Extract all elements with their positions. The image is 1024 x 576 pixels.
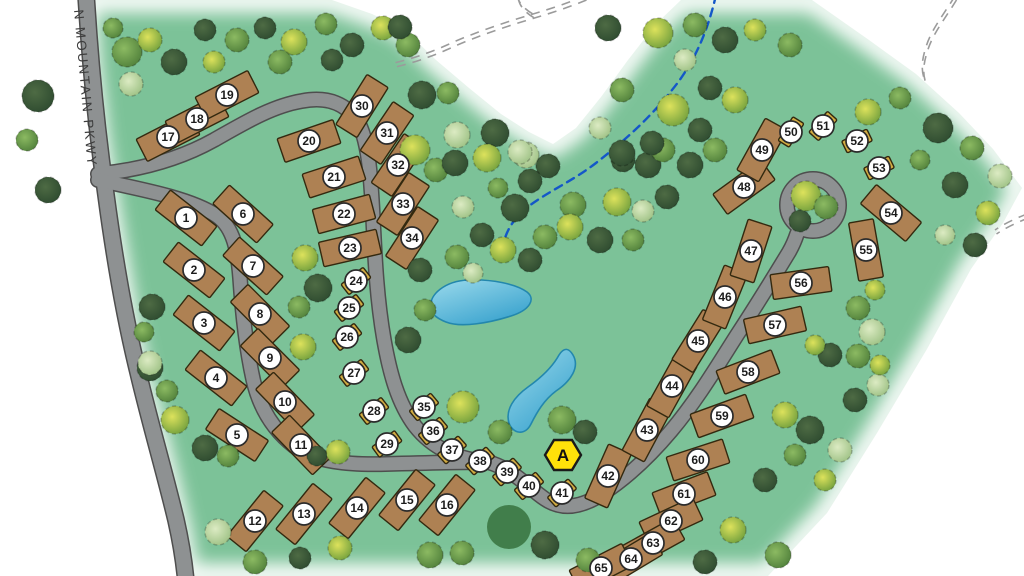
- site-label-51[interactable]: 51: [812, 115, 834, 137]
- tree-icon: [589, 117, 611, 139]
- tree-icon: [960, 136, 984, 160]
- site-number: 21: [327, 170, 341, 184]
- site-label-5[interactable]: 5: [226, 424, 248, 446]
- tree-icon: [643, 18, 673, 48]
- site-number: 7: [250, 259, 257, 273]
- site-label-9[interactable]: 9: [259, 347, 281, 369]
- tree-icon: [452, 196, 474, 218]
- tree-icon: [683, 13, 707, 37]
- site-number: 39: [500, 465, 514, 479]
- tree-icon: [859, 319, 885, 345]
- tree-icon: [243, 550, 267, 574]
- site-label-29[interactable]: 29: [376, 433, 398, 455]
- site-label-19[interactable]: 19: [216, 84, 238, 106]
- tree-icon: [855, 99, 881, 125]
- tree-icon: [846, 296, 870, 320]
- site-label-14[interactable]: 14: [346, 497, 368, 519]
- site-number: 61: [677, 487, 691, 501]
- tree-icon: [778, 33, 802, 57]
- tree-icon: [119, 72, 143, 96]
- site-label-60[interactable]: 60: [687, 449, 709, 471]
- site-label-33[interactable]: 33: [392, 193, 414, 215]
- site-number: 37: [445, 443, 459, 457]
- site-number: 56: [794, 276, 808, 290]
- site-label-1[interactable]: 1: [175, 207, 197, 229]
- site-label-50[interactable]: 50: [780, 121, 802, 143]
- site-number: 26: [340, 330, 354, 344]
- site-number: 19: [220, 88, 234, 102]
- site-number: 52: [850, 134, 864, 148]
- tree-icon: [712, 27, 738, 53]
- tree-icon: [533, 225, 557, 249]
- tree-icon: [225, 28, 249, 52]
- site-number: 55: [859, 243, 873, 257]
- site-label-55[interactable]: 55: [855, 239, 877, 261]
- tree-icon: [722, 87, 748, 113]
- site-label-47[interactable]: 47: [740, 240, 762, 262]
- tree-icon: [610, 78, 634, 102]
- site-label-28[interactable]: 28: [363, 400, 385, 422]
- site-number: 1: [183, 211, 190, 225]
- site-number: 38: [473, 454, 487, 468]
- tree-icon: [488, 420, 512, 444]
- tree-icon: [910, 150, 930, 170]
- site-label-17[interactable]: 17: [157, 126, 179, 148]
- tree-icon: [289, 547, 311, 569]
- tree-icon: [843, 388, 867, 412]
- site-number: 24: [349, 274, 363, 288]
- site-number: 25: [342, 301, 356, 315]
- site-label-59[interactable]: 59: [711, 405, 733, 427]
- tree-icon: [720, 517, 746, 543]
- site-number: 12: [248, 514, 262, 528]
- tree-icon: [693, 550, 717, 574]
- site-number: 40: [522, 479, 536, 493]
- amenity-marker-a[interactable]: A: [545, 440, 581, 470]
- site-number: 41: [555, 486, 569, 500]
- tree-icon: [698, 76, 722, 100]
- site-number: 58: [741, 365, 755, 379]
- tree-icon: [765, 542, 791, 568]
- tree-icon: [518, 169, 542, 193]
- site-number: 27: [347, 366, 361, 380]
- site-number: 54: [884, 206, 898, 220]
- site-number: 32: [391, 158, 405, 172]
- site-label-22[interactable]: 22: [333, 203, 355, 225]
- site-label-62[interactable]: 62: [660, 510, 682, 532]
- tree-icon: [22, 80, 54, 112]
- tree-icon: [490, 237, 516, 263]
- tree-icon: [796, 416, 824, 444]
- campground-site-map: 1234567891011121314151617181920212223242…: [0, 0, 1024, 576]
- tree-icon: [531, 531, 559, 559]
- site-label-26[interactable]: 26: [336, 326, 358, 348]
- site-label-42[interactable]: 42: [597, 465, 619, 487]
- site-label-8[interactable]: 8: [249, 303, 271, 325]
- tree-icon: [508, 140, 532, 164]
- site-label-61[interactable]: 61: [673, 483, 695, 505]
- tree-icon: [328, 536, 352, 560]
- tree-icon: [703, 138, 727, 162]
- tree-icon: [744, 19, 766, 41]
- site-label-2[interactable]: 2: [183, 259, 205, 281]
- tree-icon: [976, 201, 1000, 225]
- site-number: 50: [784, 125, 798, 139]
- site-label-46[interactable]: 46: [714, 286, 736, 308]
- tree-icon: [161, 406, 189, 434]
- site-label-27[interactable]: 27: [343, 362, 365, 384]
- site-number: 5: [234, 428, 241, 442]
- tree-icon: [16, 129, 38, 151]
- tree-icon: [473, 144, 501, 172]
- tree-icon: [657, 94, 689, 126]
- tree-icon: [677, 152, 703, 178]
- tree-icon: [156, 380, 178, 402]
- site-number: 36: [426, 424, 440, 438]
- site-label-16[interactable]: 16: [436, 494, 458, 516]
- site-number: 48: [737, 180, 751, 194]
- site-label-15[interactable]: 15: [396, 489, 418, 511]
- site-number: 57: [768, 318, 782, 332]
- tree-icon: [442, 150, 468, 176]
- site-label-13[interactable]: 13: [293, 503, 315, 525]
- site-label-43[interactable]: 43: [636, 419, 658, 441]
- tree-icon: [139, 294, 165, 320]
- tree-icon: [388, 15, 412, 39]
- tree-icon: [290, 334, 316, 360]
- tree-icon: [414, 299, 436, 321]
- site-number: 29: [380, 437, 394, 451]
- site-number: 28: [367, 404, 381, 418]
- tree-icon: [161, 49, 187, 75]
- site-number: 9: [267, 351, 274, 365]
- tree-icon: [548, 406, 576, 434]
- tree-icon: [609, 140, 635, 166]
- site-label-49[interactable]: 49: [751, 139, 773, 161]
- tree-icon: [603, 188, 631, 216]
- tree-icon: [772, 402, 798, 428]
- tree-icon: [268, 50, 292, 74]
- tree-icon: [288, 296, 310, 318]
- tree-icon: [315, 13, 337, 35]
- tree-icon: [304, 274, 332, 302]
- tree-icon: [828, 438, 852, 462]
- site-label-56[interactable]: 56: [790, 272, 812, 294]
- site-label-39[interactable]: 39: [496, 461, 518, 483]
- tree-icon: [134, 322, 154, 342]
- site-label-12[interactable]: 12: [244, 510, 266, 532]
- site-label-7[interactable]: 7: [242, 255, 264, 277]
- site-label-3[interactable]: 3: [193, 312, 215, 334]
- tree-icon: [622, 229, 644, 251]
- site-label-18[interactable]: 18: [186, 108, 208, 130]
- site-number: 14: [350, 501, 364, 515]
- tree-icon: [814, 469, 836, 491]
- site-label-52[interactable]: 52: [846, 130, 868, 152]
- tree-icon: [450, 541, 474, 565]
- tree-icon: [789, 210, 811, 232]
- tree-icon: [988, 164, 1012, 188]
- tree-icon: [417, 542, 443, 568]
- tree-icon: [395, 327, 421, 353]
- site-label-54[interactable]: 54: [880, 202, 902, 224]
- site-number: 10: [278, 395, 292, 409]
- site-label-35[interactable]: 35: [413, 396, 435, 418]
- site-number: 63: [646, 536, 660, 550]
- site-number: 45: [691, 334, 705, 348]
- tree-icon: [846, 344, 870, 368]
- site-number: 44: [665, 379, 679, 393]
- site-label-37[interactable]: 37: [441, 439, 463, 461]
- site-number: 34: [405, 231, 419, 245]
- tree-icon: [408, 258, 432, 282]
- tree-icon: [655, 185, 679, 209]
- tree-icon: [447, 391, 479, 423]
- site-label-4[interactable]: 4: [205, 367, 227, 389]
- site-label-21[interactable]: 21: [323, 166, 345, 188]
- site-number: 65: [594, 561, 608, 575]
- site-number: 8: [257, 307, 264, 321]
- site-label-23[interactable]: 23: [339, 237, 361, 259]
- tree-icon: [640, 131, 664, 155]
- site-label-34[interactable]: 34: [401, 227, 423, 249]
- tree-icon: [203, 51, 225, 73]
- tree-icon: [870, 355, 890, 375]
- site-label-53[interactable]: 53: [868, 157, 890, 179]
- tree-icon: [217, 445, 239, 467]
- site-number: 53: [872, 161, 886, 175]
- tree-icon: [867, 374, 889, 396]
- tree-icon: [595, 15, 621, 41]
- tree-icon: [674, 49, 696, 71]
- tree-icon: [935, 225, 955, 245]
- tree-icon: [753, 468, 777, 492]
- marker-letter: A: [557, 446, 569, 465]
- site-label-6[interactable]: 6: [232, 203, 254, 225]
- site-number: 13: [297, 507, 311, 521]
- tree-icon: [632, 200, 654, 222]
- site-number: 64: [624, 552, 638, 566]
- tree-icon: [321, 49, 343, 71]
- tree-icon: [408, 81, 436, 109]
- site-label-11[interactable]: 11: [290, 434, 312, 456]
- site-number: 6: [240, 207, 247, 221]
- site-number: 35: [417, 400, 431, 414]
- site-label-30[interactable]: 30: [351, 95, 373, 117]
- site-number: 16: [440, 498, 454, 512]
- tree-icon: [963, 233, 987, 257]
- tree-icon: [573, 420, 597, 444]
- tree-icon: [103, 18, 123, 38]
- site-label-48[interactable]: 48: [733, 176, 755, 198]
- trail-dashed-3: [922, 0, 955, 78]
- site-number: 15: [400, 493, 414, 507]
- site-number: 60: [691, 453, 705, 467]
- tree-icon: [889, 87, 911, 109]
- tree-icon: [470, 223, 494, 247]
- site-number: 33: [396, 197, 410, 211]
- site-number: 31: [380, 126, 394, 140]
- tree-icon: [463, 263, 483, 283]
- tree-icon: [923, 113, 953, 143]
- site-label-45[interactable]: 45: [687, 330, 709, 352]
- tree-icon: [557, 214, 583, 240]
- site-number: 17: [161, 130, 175, 144]
- site-number: 59: [715, 409, 729, 423]
- site-label-58[interactable]: 58: [737, 361, 759, 383]
- site-label-36[interactable]: 36: [422, 420, 444, 442]
- tree-icon: [501, 194, 529, 222]
- site-number: 23: [343, 241, 357, 255]
- tree-icon: [340, 33, 364, 57]
- site-label-65[interactable]: 65: [590, 557, 612, 576]
- site-number: 11: [295, 438, 308, 452]
- site-number: 46: [718, 290, 732, 304]
- site-number: 47: [744, 244, 758, 258]
- tree-icon: [481, 119, 509, 147]
- tree-icon: [805, 335, 825, 355]
- tree-icon: [35, 177, 61, 203]
- site-label-25[interactable]: 25: [338, 297, 360, 319]
- site-label-20[interactable]: 20: [298, 130, 320, 152]
- site-number: 22: [337, 207, 351, 221]
- map-canvas: 1234567891011121314151617181920212223242…: [0, 0, 1024, 576]
- tree-icon: [437, 82, 459, 104]
- site-label-32[interactable]: 32: [387, 154, 409, 176]
- tree-icon: [488, 178, 508, 198]
- tree-icon: [138, 351, 162, 375]
- tree-icon: [254, 17, 276, 39]
- site-number: 18: [190, 112, 204, 126]
- tree-icon: [292, 245, 318, 271]
- tree-icon: [587, 227, 613, 253]
- site-label-24[interactable]: 24: [345, 270, 367, 292]
- tree-icon: [518, 248, 542, 272]
- site-label-64[interactable]: 64: [620, 548, 642, 570]
- site-label-40[interactable]: 40: [518, 475, 540, 497]
- tree-icon: [445, 245, 469, 269]
- tree-icon: [138, 28, 162, 52]
- site-number: 62: [664, 514, 678, 528]
- tree-icon: [192, 435, 218, 461]
- tree-icon: [326, 440, 350, 464]
- site-label-41[interactable]: 41: [551, 482, 573, 504]
- tree-icon: [942, 172, 968, 198]
- tree-icon: [814, 195, 838, 219]
- tree-icon: [865, 280, 885, 300]
- tree-icon: [205, 519, 231, 545]
- tree-icon: [784, 444, 806, 466]
- tree-icon: [194, 19, 216, 41]
- site-number: 51: [816, 119, 830, 133]
- site-number: 2: [191, 263, 198, 277]
- site-number: 4: [213, 371, 220, 385]
- site-label-31[interactable]: 31: [376, 122, 398, 144]
- tree-icon: [444, 122, 470, 148]
- site-label-57[interactable]: 57: [764, 314, 786, 336]
- tree-icon: [688, 118, 712, 142]
- site-number: 3: [201, 316, 208, 330]
- site-number: 42: [601, 469, 615, 483]
- site-label-38[interactable]: 38: [469, 450, 491, 472]
- site-number: 49: [755, 143, 769, 157]
- site-number: 43: [640, 423, 654, 437]
- site-label-10[interactable]: 10: [274, 391, 296, 413]
- site-number: 30: [355, 99, 369, 113]
- site-number: 20: [302, 134, 316, 148]
- site-label-44[interactable]: 44: [661, 375, 683, 397]
- dense-grove: [487, 505, 531, 549]
- site-label-63[interactable]: 63: [642, 532, 664, 554]
